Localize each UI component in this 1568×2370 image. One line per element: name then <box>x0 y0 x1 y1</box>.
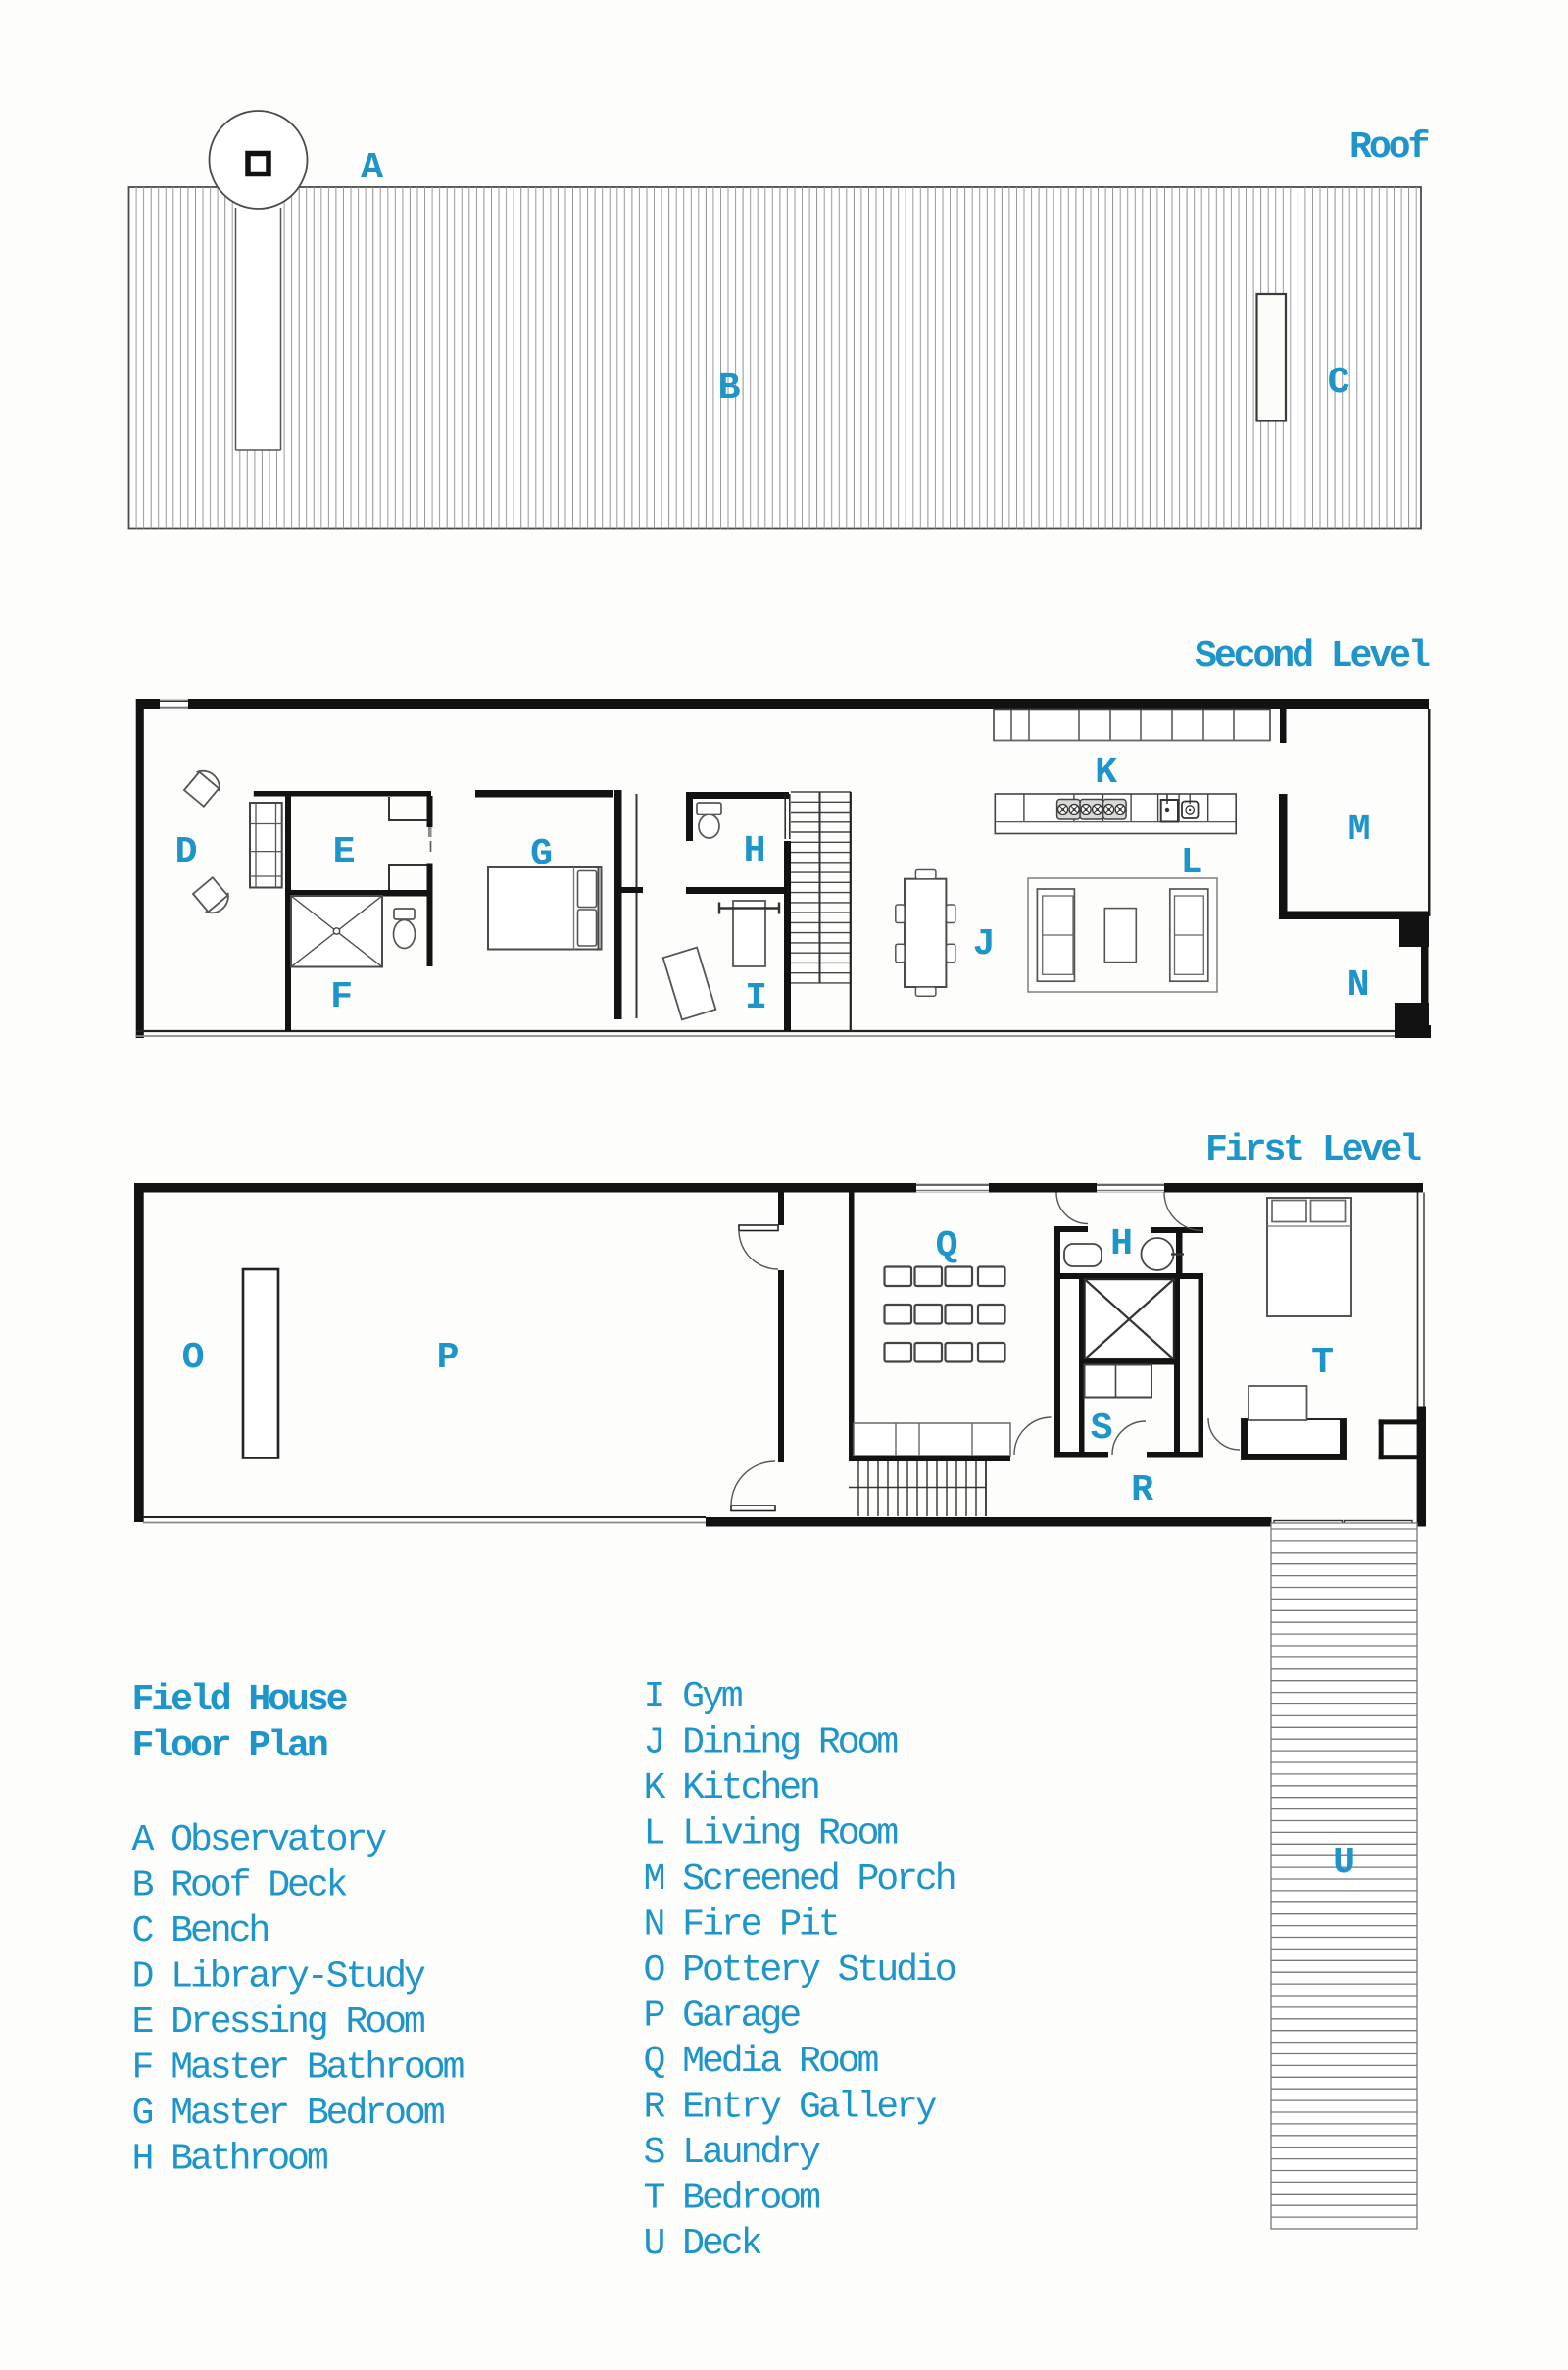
svg-text:K: K <box>1095 752 1117 794</box>
svg-text:F Master Bathroom: F Master Bathroom <box>132 2048 464 2090</box>
svg-text:U Deck: U Deck <box>644 2223 761 2265</box>
svg-text:E: E <box>333 831 355 873</box>
svg-text:E Dressing Room: E Dressing Room <box>132 2001 424 2044</box>
svg-text:C Bench: C Bench <box>132 1910 269 1952</box>
svg-text:F: F <box>330 976 351 1018</box>
svg-text:Floor Plan: Floor Plan <box>132 1725 327 1767</box>
svg-text:L Living Room: L Living Room <box>644 1813 898 1855</box>
svg-text:I: I <box>745 977 764 1019</box>
svg-text:S: S <box>1091 1407 1112 1450</box>
svg-text:Q: Q <box>936 1225 957 1267</box>
svg-text:N: N <box>1347 964 1368 1007</box>
svg-text:C: C <box>1328 362 1349 404</box>
svg-text:G Master Bedroom: G Master Bedroom <box>132 2093 444 2135</box>
svg-text:S Laundry: S Laundry <box>644 2132 821 2174</box>
svg-text:O: O <box>182 1337 204 1379</box>
svg-text:P: P <box>437 1337 459 1379</box>
svg-text:O Pottery Studio: O Pottery Studio <box>644 1950 955 1992</box>
svg-text:H: H <box>1110 1223 1131 1265</box>
svg-text:U: U <box>1333 1842 1353 1884</box>
svg-text:G: G <box>530 833 552 875</box>
svg-text:A: A <box>361 147 383 189</box>
svg-text:First Level: First Level <box>1205 1129 1421 1171</box>
svg-text:J: J <box>973 923 993 965</box>
svg-text:Second Level: Second Level <box>1195 635 1430 677</box>
svg-text:M Screened Porch: M Screened Porch <box>644 1858 955 1901</box>
svg-text:T Bedroom: T Bedroom <box>644 2178 820 2220</box>
svg-text:Q Media Room: Q Media Room <box>644 2041 878 2083</box>
svg-text:D: D <box>175 831 197 873</box>
svg-text:A Observatory: A Observatory <box>132 1819 387 1861</box>
svg-text:R Entry Gallery: R Entry Gallery <box>644 2087 937 2129</box>
svg-text:P Garage: P Garage <box>644 1996 801 2038</box>
svg-text:M: M <box>1348 809 1370 851</box>
svg-text:B: B <box>718 368 741 410</box>
svg-text:I Gym: I Gym <box>644 1676 742 1718</box>
svg-text:H: H <box>744 830 764 872</box>
svg-text:Field House: Field House <box>132 1679 348 1721</box>
svg-text:J Dining Room: J Dining Room <box>644 1722 898 1764</box>
svg-text:T: T <box>1311 1342 1333 1384</box>
svg-text:L: L <box>1181 842 1201 884</box>
svg-text:H Bathroom: H Bathroom <box>132 2139 327 2181</box>
svg-text:B Roof Deck: B Roof Deck <box>132 1865 347 1907</box>
svg-text:Roof: Roof <box>1349 126 1428 169</box>
svg-text:R: R <box>1131 1469 1153 1511</box>
svg-text:D Library-Study: D Library-Study <box>132 1956 425 1999</box>
svg-text:N Fire Pit: N Fire Pit <box>644 1904 838 1947</box>
svg-text:K Kitchen: K Kitchen <box>644 1767 819 1809</box>
